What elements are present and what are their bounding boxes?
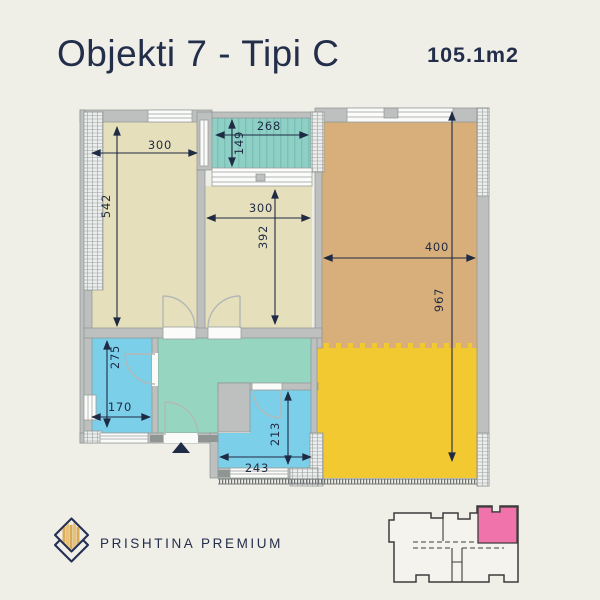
floor-plan-page: Objekti 7 - Tipi C 105.1m2 [0, 0, 600, 600]
dim-label: 967 [432, 288, 446, 312]
dim-label: 300 [249, 201, 273, 215]
building-minimap [389, 506, 518, 582]
room-living [322, 122, 477, 348]
terrace-teeth-edge [320, 343, 472, 348]
dim-label: 542 [99, 194, 113, 218]
floor-plan-canvas: Objekti 7 - Tipi C 105.1m2 [0, 0, 600, 600]
room-terrace [317, 348, 477, 478]
dim-label: 213 [268, 422, 282, 446]
balcony-window [212, 168, 312, 186]
room-bedroom-1 [90, 118, 197, 330]
floor-plan: 300 542 268 149 300 392 [80, 108, 489, 486]
dim-label: 400 [425, 240, 449, 254]
area-label: 105.1m2 [427, 43, 519, 67]
window [148, 110, 192, 122]
window [100, 433, 148, 443]
living-window [347, 108, 453, 122]
dim-label: 170 [108, 400, 132, 414]
dim-label: 300 [148, 138, 172, 152]
brand-name: PRISHTINA PREMIUM [100, 536, 283, 551]
dim-label: 243 [245, 461, 269, 475]
dim-label: 149 [232, 131, 246, 155]
dim-label: 268 [257, 119, 281, 133]
dim-label: 275 [108, 345, 122, 369]
window [200, 120, 208, 166]
minimap-highlight-unit [478, 507, 517, 543]
page-title: Objekti 7 - Tipi C [57, 33, 339, 74]
terrace-railing [218, 479, 477, 484]
dim-label: 392 [256, 225, 270, 249]
window [84, 395, 96, 420]
